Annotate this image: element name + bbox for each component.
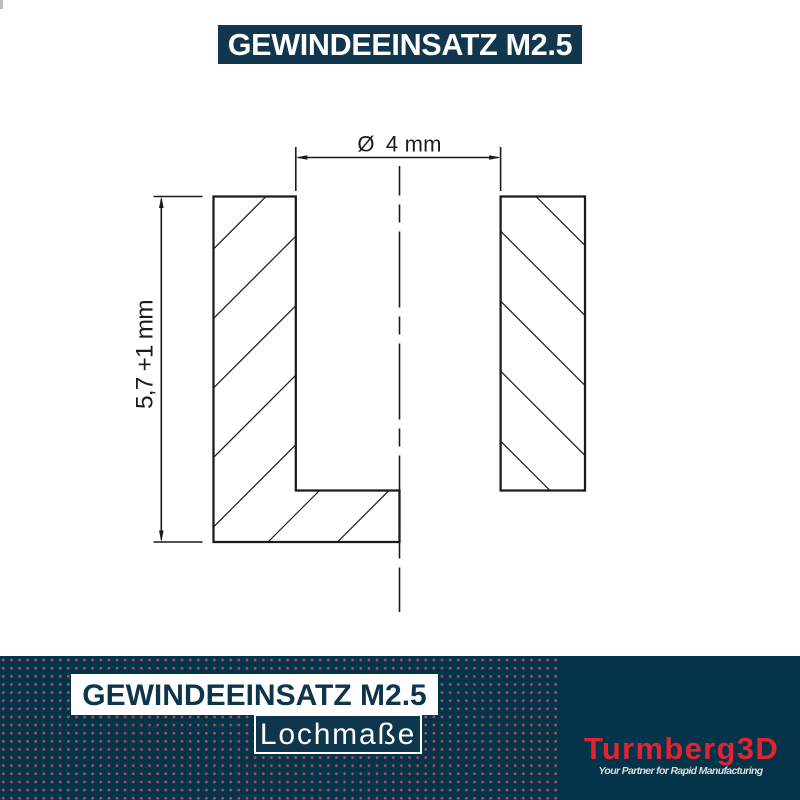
svg-text:5,7 +1 mm: 5,7 +1 mm	[132, 300, 159, 409]
svg-text:Ø 4 mm: Ø 4 mm	[357, 131, 441, 156]
